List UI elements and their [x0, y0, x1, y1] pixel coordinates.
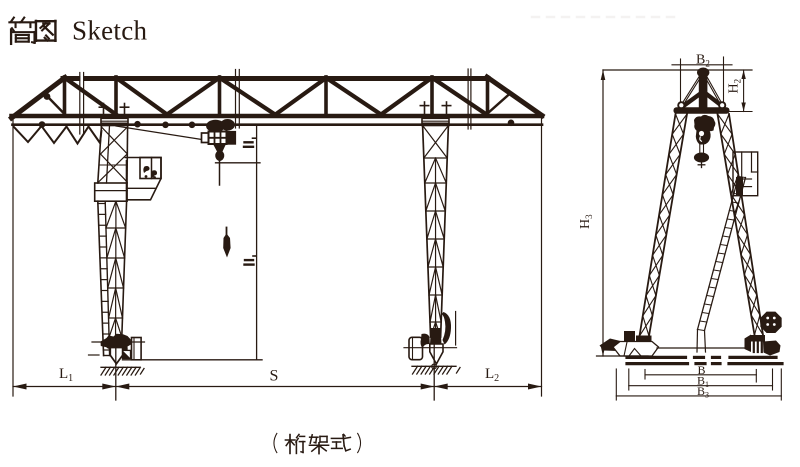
svg-text:Sketch: Sketch [72, 16, 147, 46]
svg-text:S: S [270, 368, 279, 385]
